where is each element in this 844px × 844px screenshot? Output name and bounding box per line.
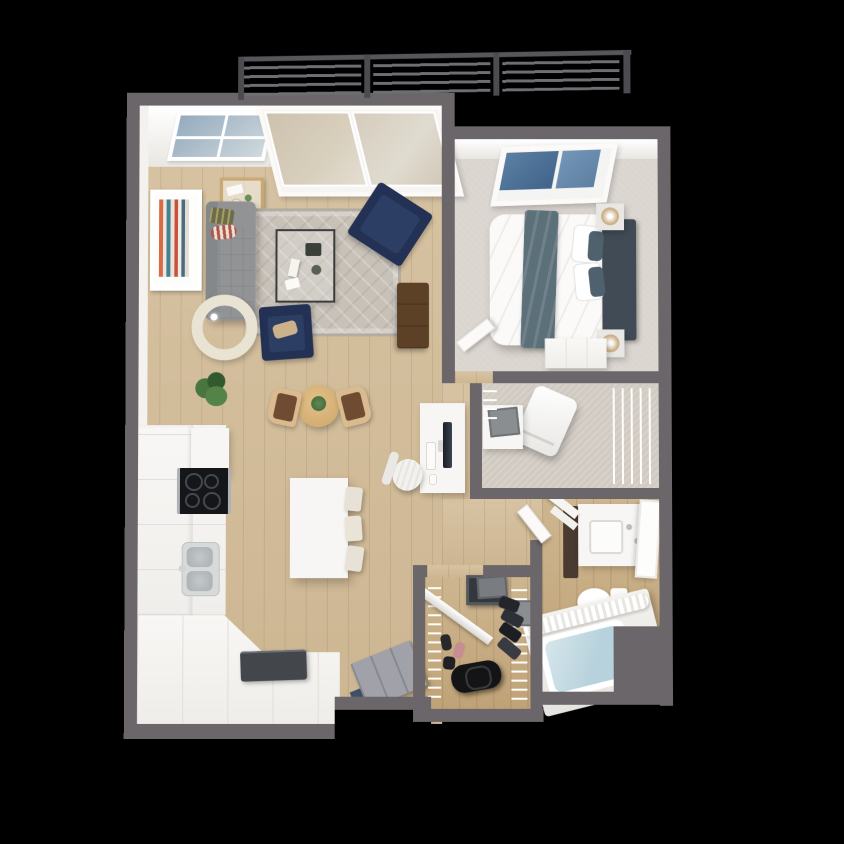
bar-stool-2 [344,515,363,541]
table-lamp-top [601,207,619,225]
wall-laundry-left [470,383,482,499]
navy-accent-chair [259,304,314,361]
bed-pillow-slate-2 [588,266,606,297]
bar-stool-1 [344,486,363,512]
potted-plant [195,372,229,408]
window-mullion-h [176,136,266,139]
bar-cart-papers [226,184,244,196]
burner-3 [185,493,200,508]
wall-art-stripes [159,199,189,276]
sink-basin-bottom [187,571,213,591]
railing-slats-1 [244,63,361,97]
dining-chair-left-seat [273,393,298,423]
duffel-handle [464,664,494,691]
headboard [602,219,636,340]
skylight-pane-left [499,151,558,190]
door-pane-right [351,112,453,187]
wall-corner-block [614,626,674,704]
sofa-pillow-olive [209,207,235,226]
wall-closet-top-left [413,565,427,577]
railing-slats-2 [373,60,490,94]
balcony [238,50,631,100]
hallway-floor [442,499,530,565]
kitchen-island [290,478,348,578]
sink-basin-top [187,547,213,567]
mouse [429,474,437,485]
skylight-pane-right [556,150,601,189]
coffee-table-books [288,258,301,277]
kitchen-sink [182,542,220,596]
cooktop [177,468,231,514]
burner-2 [204,474,219,489]
dining-chair-right-seat [340,391,366,421]
wall-closet-left [413,577,425,722]
door-pane-left [264,112,368,187]
bedroom-dresser [545,338,607,368]
floor-lamp [191,295,257,361]
washer-door-line [522,430,554,447]
coffee-table-tray [305,243,321,256]
wall-top-step [442,93,455,139]
vanity-faucet-1 [626,524,632,530]
railing-post-1 [238,57,244,100]
wall-art [150,190,202,291]
floor-plan [124,93,685,739]
railing-slats-3 [502,58,619,92]
wall-living-bedroom-divider [442,139,455,371]
laundry-wire-shelving [613,388,655,484]
railing-post-2 [364,54,370,97]
bar-cart-bottle [245,195,252,202]
outer-wall-bottom-kitchen [124,724,340,739]
imac-stand [438,440,443,452]
skylight-window [490,143,618,206]
laptop-on-counter [240,649,307,681]
railing-post-3 [493,52,499,95]
bar-stool-3 [344,545,364,572]
plant-foliage-3 [205,386,227,406]
coffee-table [275,229,335,302]
throw-blanket [520,210,558,349]
wall-bedroom-bottom-left [442,371,455,383]
burner-1 [185,473,203,491]
bedroom-doorway-floor [455,371,493,383]
wall-closet-bottom [413,709,544,722]
floor-lamp-bulb [211,314,218,321]
sliding-glass-door [256,106,464,197]
imac-monitor [443,422,452,468]
armchair-cushion [359,194,421,255]
wall-closet-top-right [483,565,542,577]
wall-laundry-bottom [470,488,672,499]
coffee-table-papers [284,277,300,290]
laundry-wire-shelf-small [483,385,497,419]
outer-wall-right [657,126,673,705]
outer-wall-top-bedroom [455,126,671,139]
vanity-sink [589,520,623,554]
bed-pillow-slate-1 [587,231,604,262]
sink-faucet [179,565,186,572]
railing-post-4 [623,50,630,93]
centerpiece-plant [311,396,326,411]
media-console [397,283,429,349]
wall-bedroom-bottom-right [493,371,672,383]
coffee-table-decor [311,265,321,275]
burner-4 [203,492,221,510]
